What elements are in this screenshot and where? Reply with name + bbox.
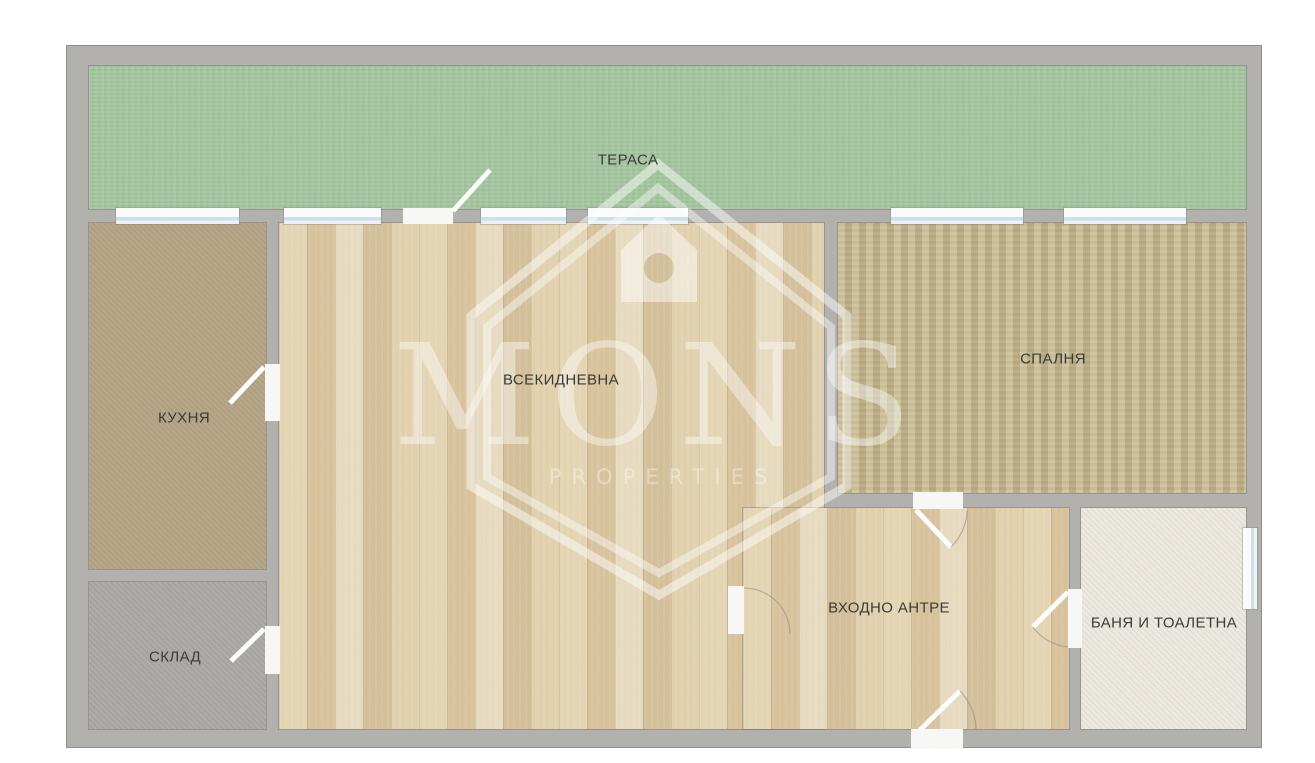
floor-plan: MONS PROPERTIES ТЕРАСА КУХНЯ СКЛАД ВСЕКИ… [66,45,1262,748]
room-terrace [89,66,1246,209]
door-kitchen [265,364,280,421]
door-storage [265,626,280,674]
room-label-entrance-hall: ВХОДНО АНТРЕ [828,600,950,617]
door-living-hall [728,586,744,634]
door-bedroom [913,492,963,509]
window-bedroom-1 [891,208,1023,224]
room-label-terrace: ТЕРАСА [598,152,659,169]
room-label-bathroom: БАНЯ И ТОАЛЕТНА [1091,615,1237,632]
window-living-2 [481,208,566,224]
room-entrance-hall [743,508,1069,729]
room-label-storage: СКЛАД [149,649,201,666]
room-label-living: ВСЕКИДНЕВНА [503,372,619,389]
window-kitchen [116,208,239,224]
window-living-3 [588,208,688,224]
door-balcony [403,208,453,224]
room-label-bedroom: СПАЛНЯ [1020,351,1086,368]
window-living-1 [284,208,381,224]
window-bedroom-2 [1064,208,1186,224]
room-label-kitchen: КУХНЯ [158,410,210,427]
door-entrance [911,729,963,749]
floor-plan-page: MONS PROPERTIES ТЕРАСА КУХНЯ СКЛАД ВСЕКИ… [0,0,1315,763]
window-bathroom [1243,528,1257,609]
room-kitchen [89,223,266,569]
door-bathroom [1068,589,1082,648]
